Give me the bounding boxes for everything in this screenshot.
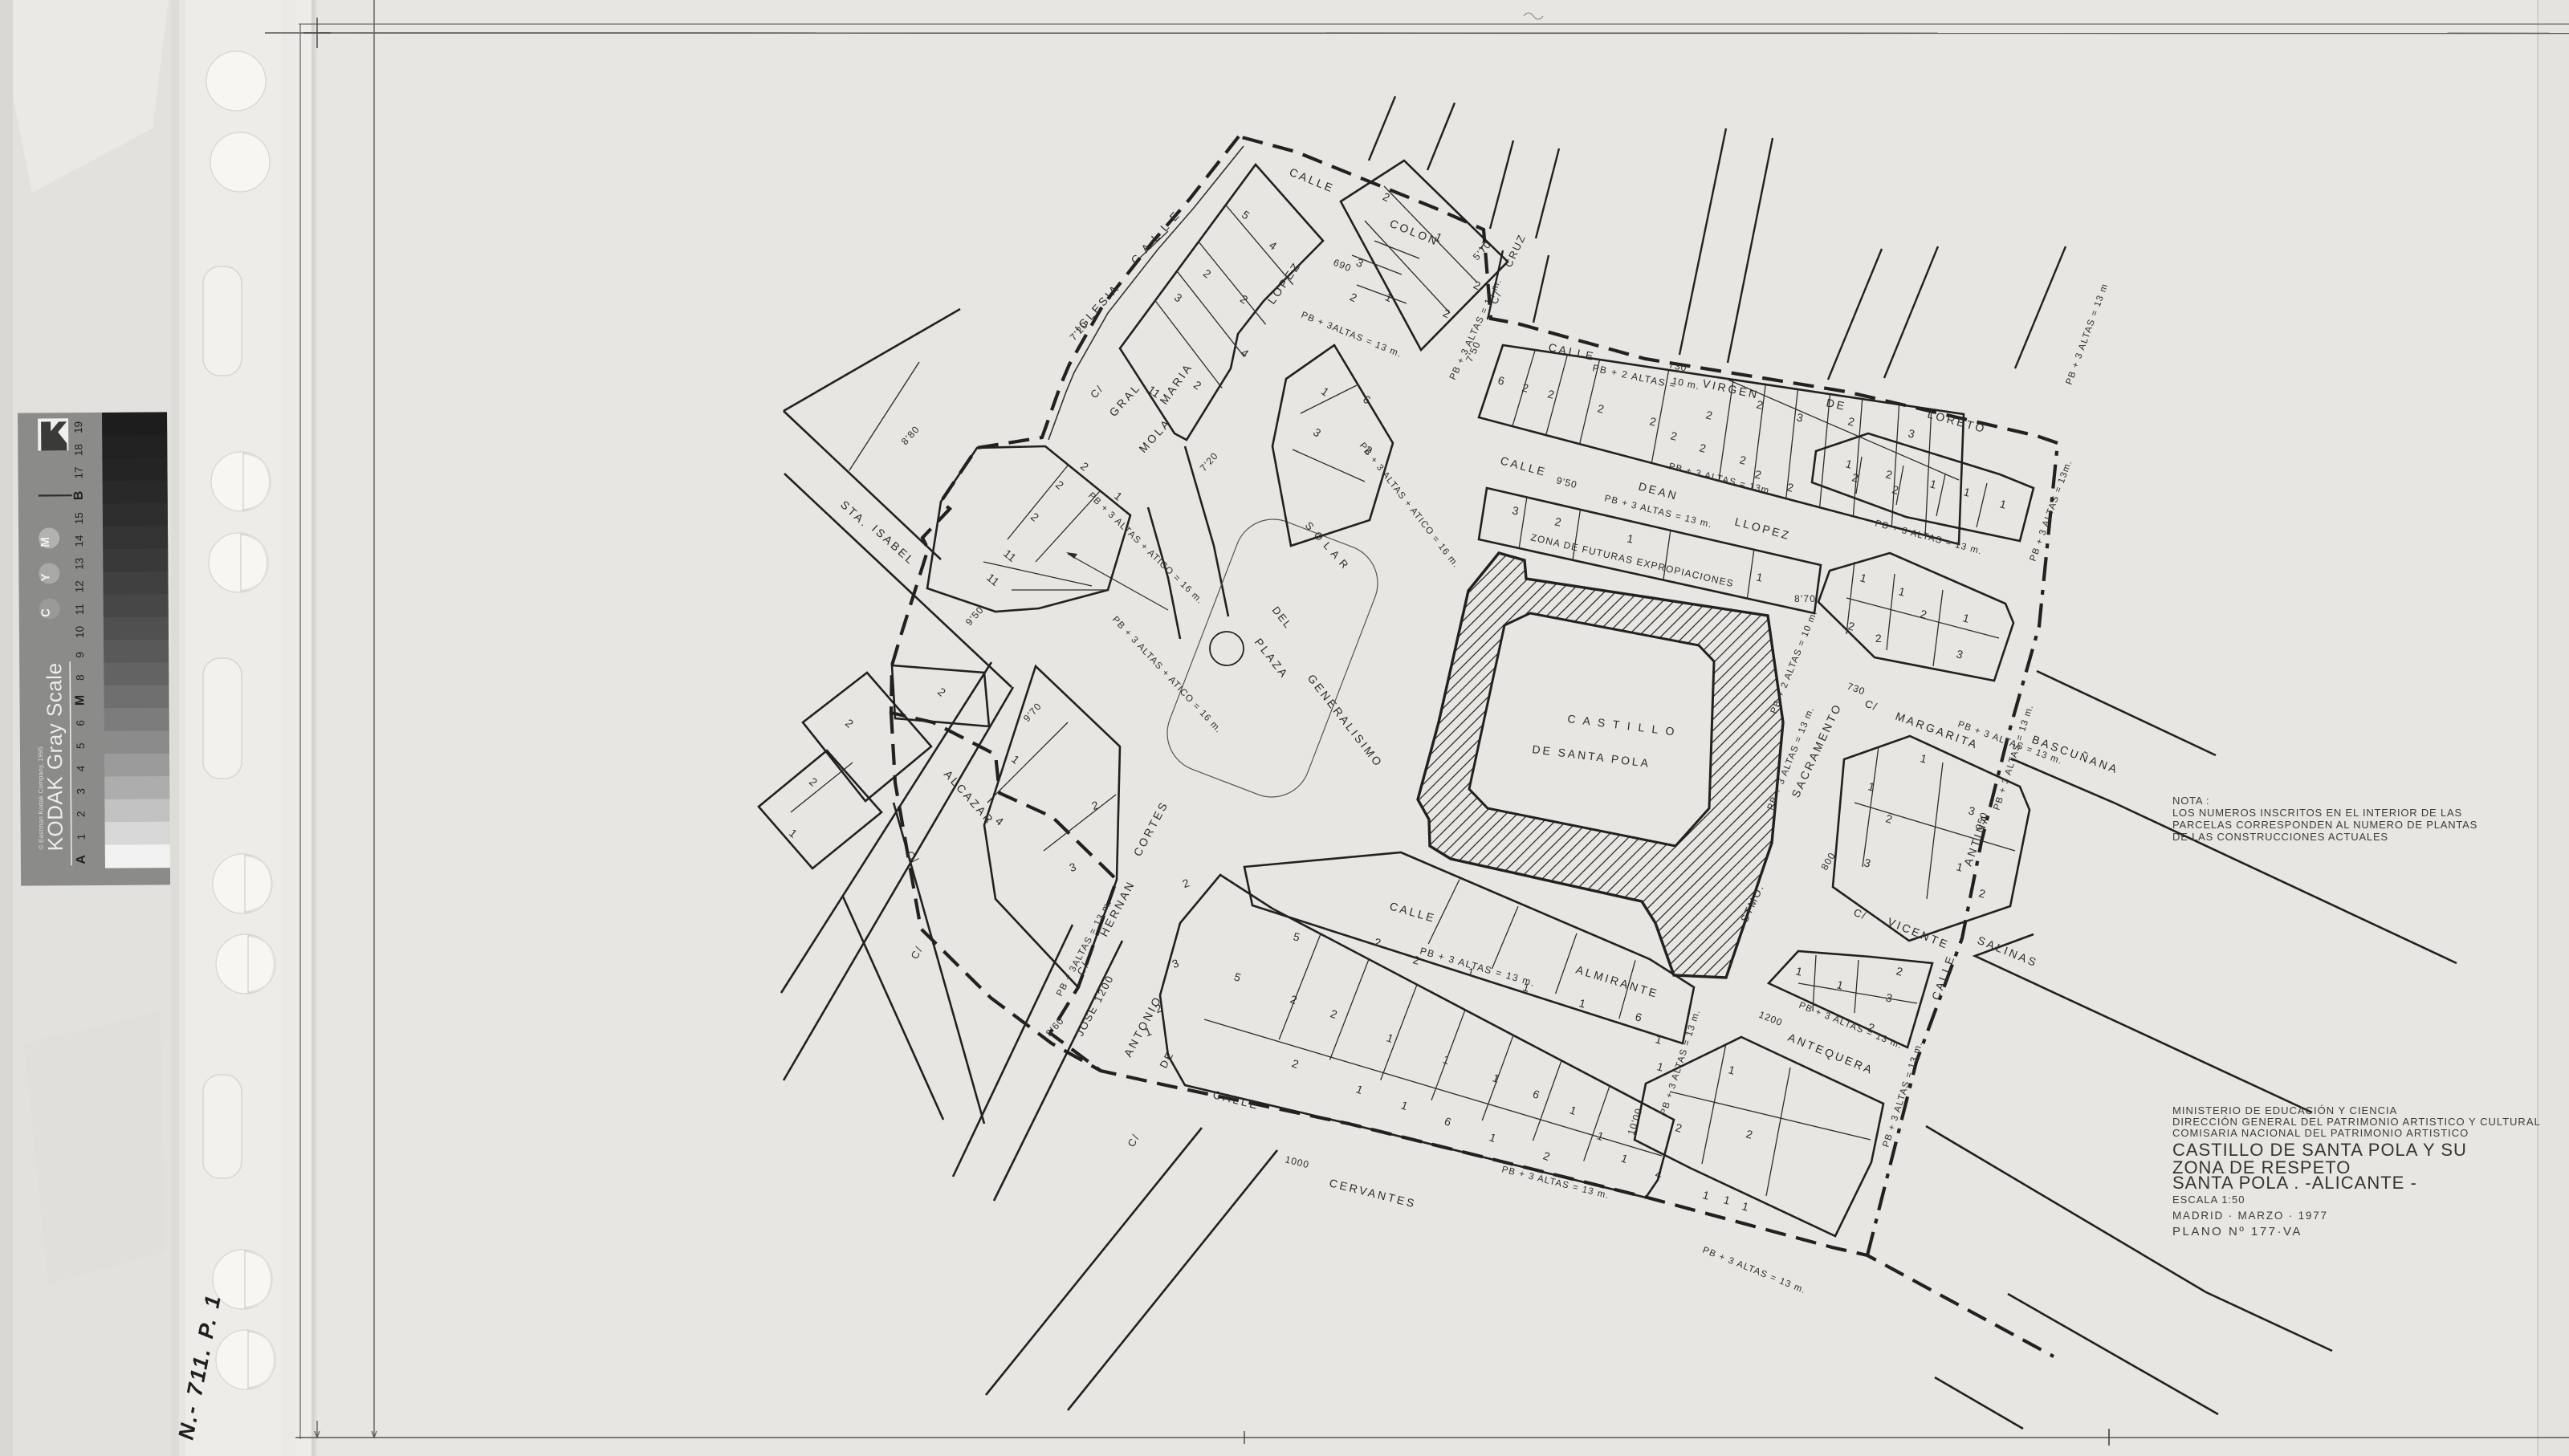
svg-text:COMISARIA NACIONAL DEL PATR: COMISARIA NACIONAL DEL PATRIMONIO ARTIST… [2172,1127,2469,1139]
svg-text:1: 1 [75,834,88,840]
svg-text:9: 9 [74,652,86,658]
svg-text:MADRID · MARZO · 1977: MADRID · MARZO · 1977 [2172,1210,2328,1222]
svg-text:19: 19 [72,421,84,433]
svg-text:3: 3 [75,788,87,795]
svg-text:ESCALA 1:50: ESCALA 1:50 [2172,1194,2245,1206]
svg-text:8'70: 8'70 [1794,593,1816,604]
svg-text:SANTA POLA . -ALICANTE -: SANTA POLA . -ALICANTE - [2172,1173,2417,1193]
svg-text:Y: Y [39,573,52,581]
svg-text:© Eastman Kodak Company, 1995: © Eastman Kodak Company, 1995 [37,746,45,850]
svg-text:MINISTERIO DE EDUCACIÓN Y: MINISTERIO DE EDUCACIÓN Y CIENCIA [2172,1104,2397,1116]
svg-text:17: 17 [72,466,84,478]
svg-text:PLANO Nº 177·VA: PLANO Nº 177·VA [2172,1225,2302,1238]
svg-text:6: 6 [75,720,87,726]
svg-text:M: M [73,695,87,706]
svg-text:NOTA :: NOTA : [2172,795,2209,807]
svg-text:13: 13 [73,558,85,570]
svg-text:KODAK Gray Scale: KODAK Gray Scale [42,662,67,851]
svg-text:18: 18 [72,444,84,456]
svg-text:M: M [39,537,52,547]
svg-text:2: 2 [1875,632,1882,645]
svg-text:12: 12 [73,580,85,592]
svg-text:4: 4 [75,765,87,771]
svg-text:DE LAS CONSTRUCCIONES ACTUA: DE LAS CONSTRUCCIONES ACTUALES [2172,831,2388,843]
svg-text:C: C [39,608,53,617]
svg-text:A: A [75,855,88,864]
svg-text:8: 8 [74,674,86,681]
svg-text:11: 11 [74,604,86,615]
svg-text:2: 2 [75,811,87,817]
svg-text:PARCELAS CORRESPONDEN AL NU: PARCELAS CORRESPONDEN AL NUMERO DE PLANT… [2172,819,2477,831]
svg-text:LOS NUMEROS INSCRITOS EN E: LOS NUMEROS INSCRITOS EN EL INTERIOR DE … [2172,807,2462,819]
svg-text:5: 5 [75,742,87,749]
svg-text:10: 10 [74,626,86,638]
svg-text:DIRECCIÓN GENERAL DEL PATRI: DIRECCIÓN GENERAL DEL PATRIMONIO ARTISTI… [2172,1116,2541,1128]
svg-text:14: 14 [73,535,85,547]
svg-text:B: B [72,491,86,501]
svg-text:15: 15 [73,512,85,524]
